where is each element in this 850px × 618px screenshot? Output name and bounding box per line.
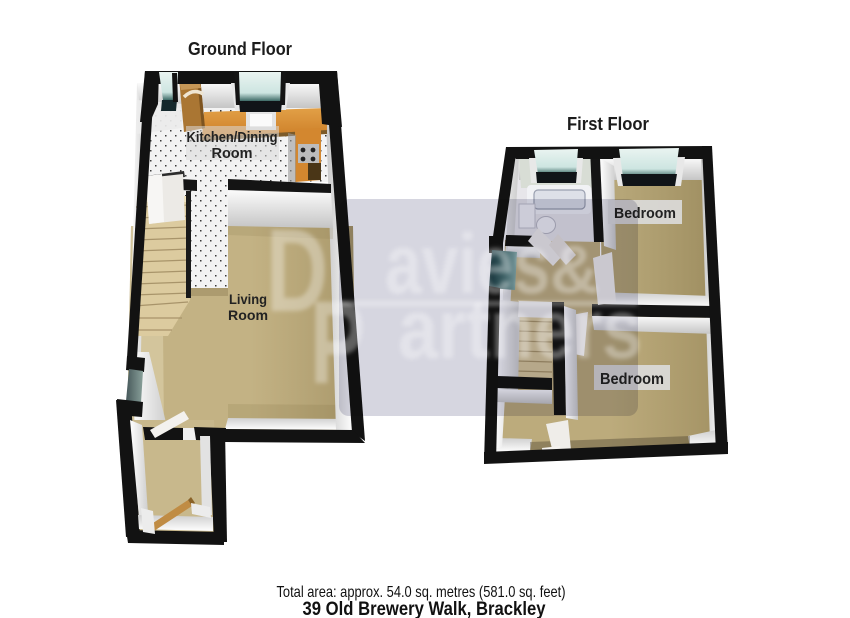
svg-text:Living: Living bbox=[229, 291, 267, 307]
svg-text:Kitchen/Dining: Kitchen/Dining bbox=[187, 129, 278, 146]
svg-text:First Floor: First Floor bbox=[567, 114, 649, 134]
svg-text:Ground Floor: Ground Floor bbox=[188, 39, 292, 59]
svg-text:39 Old Brewery Walk, Brackley: 39 Old Brewery Walk, Brackley bbox=[303, 599, 546, 618]
svg-text:Room: Room bbox=[228, 307, 268, 323]
svg-text:Room: Room bbox=[212, 145, 253, 162]
svg-text:P: P bbox=[310, 276, 365, 408]
svg-text:artners: artners bbox=[398, 282, 642, 376]
